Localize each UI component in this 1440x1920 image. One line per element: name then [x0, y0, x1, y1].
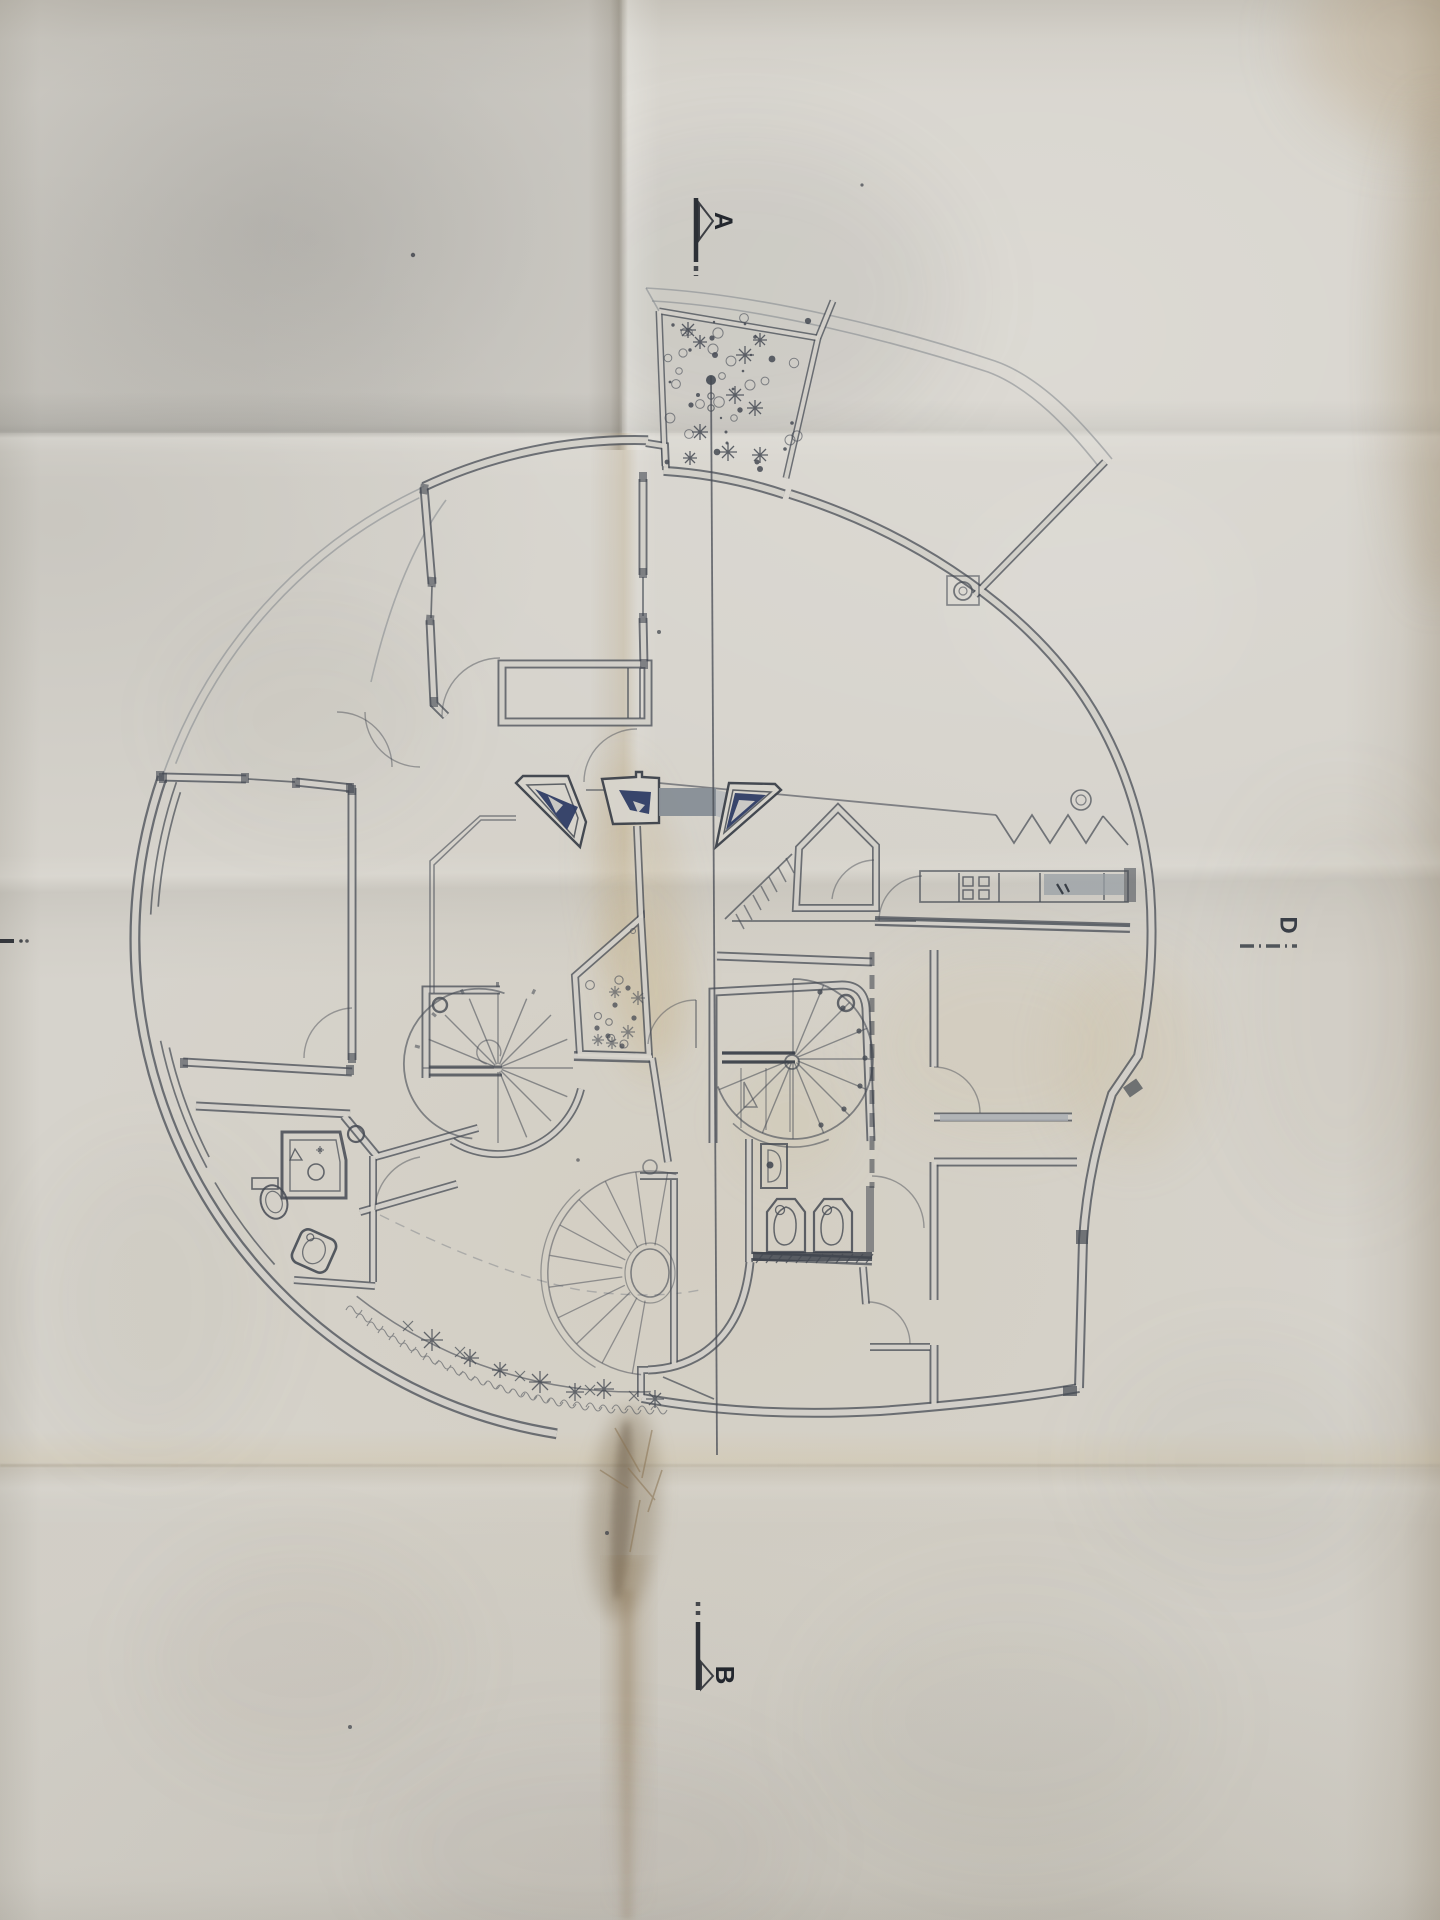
svg-text:D: D — [1275, 916, 1302, 933]
svg-text:A: A — [709, 212, 737, 230]
svg-text:B: B — [710, 1666, 740, 1685]
